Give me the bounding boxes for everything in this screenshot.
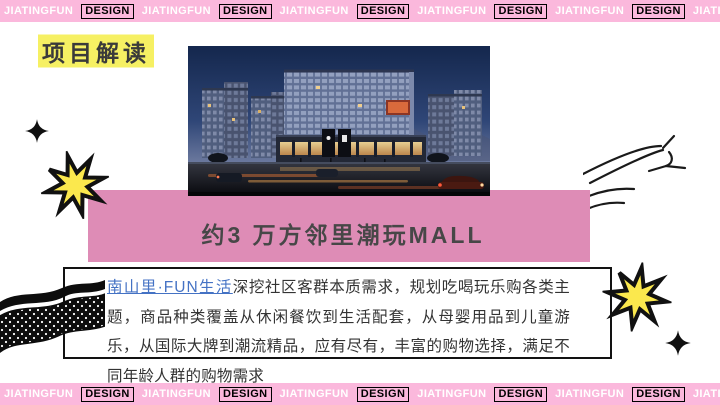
- building-rendering-image: [188, 46, 490, 196]
- sparkle-icon: [663, 328, 693, 358]
- subtitle-text: 约3 万方邻里潮玩MALL: [193, 216, 484, 250]
- page-title: 项目解读: [38, 32, 154, 70]
- sparkle-icon: [23, 117, 51, 145]
- star-burst-icon: [597, 257, 677, 337]
- dotted-ribbon-icon: [0, 280, 105, 365]
- sketch-lines-icon: [583, 130, 720, 214]
- description-box: 南山里·FUN生活深挖社区客群本质需求，规划吃喝玩乐购各类主题，商品种类覆盖从休…: [63, 267, 612, 359]
- top-banner: JIATINGFUNDESIGNJIATINGFUNDESIGNJIATINGF…: [0, 0, 720, 22]
- subtitle-banner: 约3 万方邻里潮玩MALL: [88, 190, 590, 262]
- description-highlight-link[interactable]: 南山里·FUN生活: [107, 279, 233, 296]
- description-text: 南山里·FUN生活深挖社区客群本质需求，规划吃喝玩乐购各类主题，商品种类覆盖从休…: [107, 273, 570, 391]
- slide-root: JIATINGFUNDESIGNJIATINGFUNDESIGNJIATINGF…: [0, 0, 720, 405]
